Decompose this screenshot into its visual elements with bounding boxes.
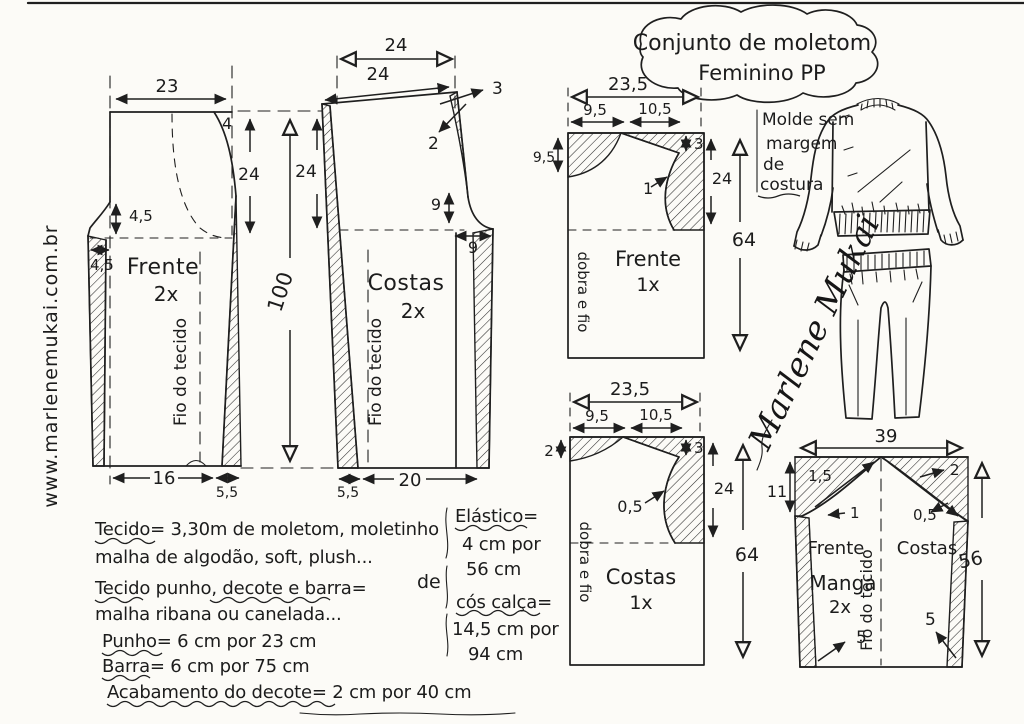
dim-hem-taper-left: 5 xyxy=(856,628,867,648)
dim-armhole: 24 xyxy=(714,479,734,498)
grain-label: Fio do tecido xyxy=(366,318,386,426)
dim-shoulder-drop: 3 xyxy=(694,439,704,457)
right-cuff-ribs xyxy=(944,232,958,244)
creases xyxy=(858,318,906,416)
dim-hip-depth: 4,5 xyxy=(129,207,153,225)
note-line3: de xyxy=(763,155,784,175)
dim-ease: 1 xyxy=(643,179,653,198)
dim-hem-allow: 5,5 xyxy=(337,485,359,501)
fold-label: dobra e fio xyxy=(576,522,594,603)
torso-left xyxy=(832,122,833,212)
seam-allowance-note: Molde sem margem de costura xyxy=(757,110,857,198)
note-de: de xyxy=(417,571,441,593)
pattern-drawing: www.marlenemukai.com.br 23 4 4,5 4,5 16 … xyxy=(0,0,1024,724)
dim-waist: 23 xyxy=(156,76,179,97)
top-front-piece: 23,5 9,5 10,5 9,5 3 1 24 64 dobra e fio … xyxy=(533,74,756,358)
dim-length: 56 xyxy=(957,547,985,574)
dim-seam: 2 xyxy=(428,134,439,154)
title-line2: Feminino PP xyxy=(698,61,825,85)
stray-line xyxy=(300,713,515,715)
dim-width: 23,5 xyxy=(608,74,648,95)
right-sleeve xyxy=(898,105,963,240)
piece-qty: 2x xyxy=(829,597,851,618)
crotch-curve xyxy=(468,197,493,229)
note-line1: Molde sem xyxy=(762,110,854,130)
title-line1: Conjunto de moletom xyxy=(633,31,871,56)
dim-width: 23,5 xyxy=(610,379,650,400)
note-rib-2: malha ribana ou canelada... xyxy=(95,604,342,625)
dim-cap-height: 11 xyxy=(767,482,787,501)
piece-qty: 1x xyxy=(629,592,652,614)
dim-armhole: 24 xyxy=(712,169,732,188)
note-neckline: Acabamento do decote= 2 cm por 40 cm xyxy=(107,682,471,703)
sewing-pattern-sheet: www.marlenemukai.com.br 23 4 4,5 4,5 16 … xyxy=(0,0,1024,724)
dim-hem-taper-right: 5 xyxy=(925,610,936,630)
dim-waist-slant: 24 xyxy=(367,64,390,85)
dim-cap-back-2: 0,5 xyxy=(913,506,937,524)
dim-neck-width: 9,5 xyxy=(585,407,609,425)
piece-qty: 2x xyxy=(154,282,179,306)
crease-line xyxy=(172,114,228,238)
dim-ease: 0,5 xyxy=(617,497,642,516)
crotch-curve xyxy=(88,202,110,236)
note-waistband-label: cós calça= xyxy=(456,592,552,613)
piece-name: Frente xyxy=(615,247,681,271)
dim-hem: 20 xyxy=(399,470,422,491)
pants-back-piece: 24 24 3 2 9 9 5,5 20 Fio do tecido Costa… xyxy=(295,35,503,501)
neckline-hatch xyxy=(570,437,623,461)
dim-length: 100 xyxy=(263,269,298,315)
piece-name: Manga xyxy=(809,571,876,595)
note-cuff: Punho= 6 cm por 23 cm xyxy=(102,631,316,652)
dim-width: 39 xyxy=(875,426,898,447)
dim-cap-back-1: 2 xyxy=(950,461,960,479)
dim-length: 64 xyxy=(732,229,756,251)
piece-name: Costas xyxy=(606,565,677,589)
note-elastic-label: Elástico= xyxy=(455,506,538,527)
dim-neck-depth: 9,5 xyxy=(533,150,555,166)
fold-lines xyxy=(858,150,910,202)
website-text: www.marlenemukai.com.br xyxy=(40,224,62,507)
note-fabric-1: Tecido= 3,30m de moletom, moletinho xyxy=(94,519,439,540)
dim-neck-width: 9,5 xyxy=(583,101,607,119)
dim-hem: 16 xyxy=(153,468,176,489)
dim-rise: 24 xyxy=(238,165,260,185)
note-elastic-2: 56 cm xyxy=(466,559,521,580)
dim-rise: 24 xyxy=(295,162,317,182)
sleeve-piece: 39 11 1,5 1 2 0,5 Fio do tecido Frente C… xyxy=(767,426,985,667)
dim-shoulder-width: 10,5 xyxy=(639,406,672,424)
cap-back-label: Costas xyxy=(897,538,957,559)
dim-waist-guide: 24 xyxy=(385,35,408,56)
note-waistband-1: 14,5 cm por xyxy=(452,619,559,640)
materials-notes: Tecido= 3,30m de moletom, moletinho malh… xyxy=(94,506,559,715)
note-line4: costura xyxy=(760,175,823,195)
dim-length: 64 xyxy=(735,544,759,566)
piece-name: Costas xyxy=(368,271,445,296)
fold-label: dobra e fio xyxy=(574,252,592,333)
note-waistband-2: 94 cm xyxy=(468,644,523,665)
note-rib-1: Tecido punho, decote e barra= xyxy=(94,578,367,599)
cap-arrow xyxy=(828,513,845,515)
dim-shoulder-width: 10,5 xyxy=(638,100,671,118)
grain-label: Fio do tecido xyxy=(171,318,191,426)
column-divider xyxy=(446,508,448,656)
armhole-hatch xyxy=(623,437,704,543)
taper-arrow xyxy=(818,642,845,661)
piece-qty: 1x xyxy=(636,274,659,296)
dim-hem-allow: 5,5 xyxy=(216,485,238,501)
dim-raise: 3 xyxy=(492,79,503,99)
dim-cap-front-1: 1,5 xyxy=(808,467,832,485)
dim-crotch-depth: 9 xyxy=(431,195,441,214)
piece-name: Frente xyxy=(127,255,199,280)
note-fabric-2: malha de algodão, soft, plush... xyxy=(95,547,373,568)
pants-front-piece: 23 4 4,5 4,5 16 5,5 Fio do tecido Frente… xyxy=(88,66,260,501)
title-bubble: Conjunto de moletom Feminino PP xyxy=(633,5,878,102)
seam-allowance-hatch xyxy=(322,104,358,468)
dim-curve: 4 xyxy=(222,114,232,133)
ease-arrow xyxy=(651,177,667,187)
cap-front-label: Frente xyxy=(808,538,865,559)
ease-arrow xyxy=(645,491,664,503)
note-line2: margem xyxy=(766,134,837,154)
neckline-hatch xyxy=(568,133,621,177)
note-elastic-1: 4 cm por xyxy=(462,534,541,555)
torso-right xyxy=(926,122,929,212)
top-back-piece: 23,5 9,5 10,5 2 3 0,5 24 64 dobra e fio … xyxy=(544,379,759,665)
piece-qty: 2x xyxy=(401,299,426,323)
note-hem: Barra= 6 cm por 75 cm xyxy=(102,656,309,677)
dim-cap-front-2: 1 xyxy=(850,504,860,522)
dim-shoulder-drop: 3 xyxy=(694,135,704,153)
dim-neck-depth: 2 xyxy=(544,442,554,460)
